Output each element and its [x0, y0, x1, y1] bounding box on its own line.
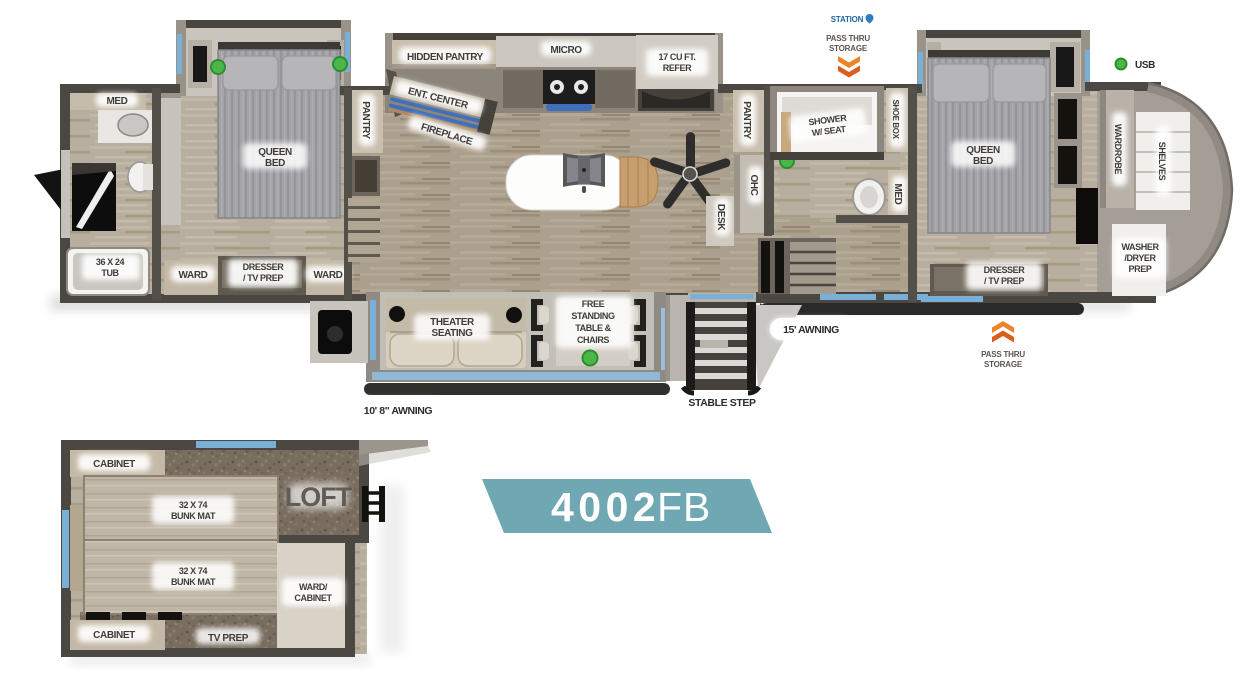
- svg-text:36 X 24: 36 X 24: [96, 257, 125, 267]
- svg-text:CABINET: CABINET: [93, 459, 135, 470]
- svg-text:THEATER: THEATER: [430, 317, 475, 328]
- svg-text:TV PREP: TV PREP: [208, 633, 249, 644]
- svg-text:STORAGE: STORAGE: [984, 360, 1023, 369]
- svg-text:10' 8" AWNING: 10' 8" AWNING: [364, 405, 433, 417]
- svg-text:DRESSER: DRESSER: [243, 262, 285, 272]
- svg-text:REFER: REFER: [663, 63, 692, 73]
- svg-text:STATION: STATION: [831, 15, 864, 24]
- svg-text:BED: BED: [265, 158, 285, 169]
- svg-text:PASS THRU: PASS THRU: [981, 350, 1025, 359]
- svg-text:STANDING: STANDING: [571, 311, 615, 321]
- svg-text:WARD: WARD: [314, 270, 343, 281]
- svg-text:4002: 4002: [551, 484, 660, 530]
- svg-text:TABLE &: TABLE &: [575, 323, 611, 333]
- svg-text:SHOE BOX: SHOE BOX: [891, 99, 900, 139]
- svg-text:QUEEN: QUEEN: [258, 147, 292, 158]
- svg-text:MICRO: MICRO: [550, 45, 582, 56]
- svg-text:SHELVES: SHELVES: [1157, 142, 1167, 181]
- svg-text:PANTRY: PANTRY: [741, 101, 752, 139]
- svg-text:32 X 74: 32 X 74: [179, 566, 208, 576]
- svg-text:WARD: WARD: [179, 270, 208, 281]
- svg-text:HIDDEN PANTRY: HIDDEN PANTRY: [407, 52, 484, 63]
- svg-text:CABINET: CABINET: [294, 593, 332, 603]
- svg-text:FB: FB: [657, 484, 711, 530]
- svg-text:DRESSER: DRESSER: [984, 265, 1026, 275]
- svg-text:OHC: OHC: [748, 174, 759, 195]
- svg-text:CHAIRS: CHAIRS: [577, 335, 609, 345]
- svg-text:STABLE STEP: STABLE STEP: [688, 397, 756, 409]
- svg-text:QUEEN: QUEEN: [966, 145, 1000, 156]
- svg-text:15' AWNING: 15' AWNING: [783, 324, 839, 336]
- svg-text:BUNK MAT: BUNK MAT: [171, 577, 216, 587]
- svg-text:TUB: TUB: [101, 268, 119, 278]
- svg-text:PANTRY: PANTRY: [360, 101, 371, 139]
- svg-text:USB: USB: [1135, 60, 1155, 71]
- svg-text:PASS THRU: PASS THRU: [826, 34, 870, 43]
- svg-text:FREE: FREE: [582, 299, 605, 309]
- svg-text:/ TV PREP: / TV PREP: [984, 276, 1024, 286]
- svg-text:STORAGE: STORAGE: [829, 44, 868, 53]
- svg-text:WARDROBE: WARDROBE: [1113, 124, 1123, 175]
- svg-text:17 CU FT.: 17 CU FT.: [659, 52, 696, 62]
- svg-text:SEATING: SEATING: [432, 328, 474, 339]
- svg-text:PREP: PREP: [1129, 264, 1152, 274]
- svg-text:MED: MED: [106, 96, 127, 107]
- svg-text:32 X 74: 32 X 74: [179, 500, 208, 510]
- svg-text:/DRYER: /DRYER: [1124, 253, 1156, 263]
- svg-text:MED: MED: [892, 183, 903, 204]
- svg-text:DESK: DESK: [715, 204, 726, 231]
- svg-text:BED: BED: [973, 156, 993, 167]
- svg-text:WARD/: WARD/: [299, 582, 328, 592]
- svg-text:BUNK MAT: BUNK MAT: [171, 511, 216, 521]
- svg-text:WASHER: WASHER: [1121, 242, 1159, 252]
- svg-text:/ TV PREP: / TV PREP: [243, 273, 283, 283]
- svg-text:LOFT: LOFT: [285, 482, 353, 512]
- svg-text:CABINET: CABINET: [93, 630, 135, 641]
